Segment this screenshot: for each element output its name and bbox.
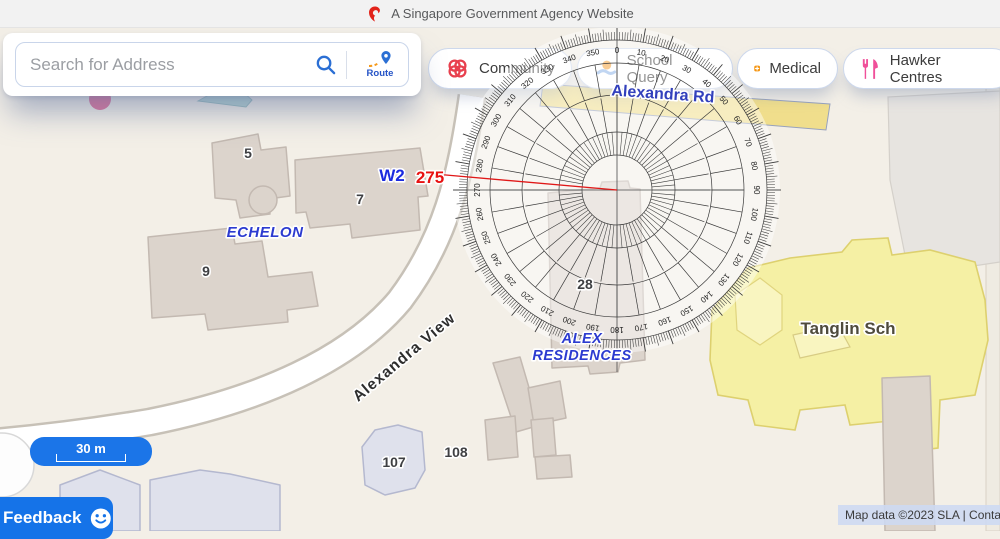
building-number-9: 9	[202, 263, 210, 279]
building-slab-b	[531, 418, 556, 457]
scale-bar: 30 m	[30, 437, 152, 466]
school-icon	[594, 57, 618, 81]
category-button-community[interactable]: Community	[428, 48, 572, 89]
category-label: Hawker Centres	[890, 52, 996, 86]
building-5-bump	[249, 186, 277, 214]
search-box[interactable]: Route	[15, 42, 409, 87]
merlion-icon	[366, 4, 384, 24]
route-pin-icon	[367, 50, 394, 69]
map-attribution[interactable]: Map data ©2023 SLA | Contac	[838, 505, 1000, 525]
banner-text: A Singapore Government Agency Website	[391, 6, 634, 21]
smiley-icon	[89, 506, 113, 531]
route-button[interactable]: Route	[356, 50, 408, 79]
route-label: Route	[367, 69, 394, 79]
category-button-medical[interactable]: Medical	[737, 48, 838, 89]
category-button-school-query[interactable]: School Query	[577, 48, 733, 89]
building-28-tower	[548, 181, 645, 374]
building-number-108: 108	[444, 444, 468, 460]
feedback-label: Feedback	[3, 508, 81, 528]
category-button-hawker-centres[interactable]: Hawker Centres	[843, 48, 1000, 89]
fork-knife-icon	[860, 57, 881, 80]
building-grey-topright	[888, 91, 1000, 268]
building-number-107: 107	[382, 454, 406, 470]
search-card: Route	[3, 33, 421, 96]
building-number-5: 5	[244, 145, 252, 161]
feedback-button[interactable]: Feedback	[0, 497, 113, 539]
magnifier-icon[interactable]	[314, 53, 337, 76]
category-label: Community	[479, 60, 555, 77]
medical-cross-icon	[754, 57, 760, 80]
area-label-tanglin-sch: Tanglin Sch	[800, 319, 895, 338]
building-slab-a	[485, 416, 518, 460]
area-label-echelon: ECHELON	[227, 224, 305, 241]
community-rings-icon	[445, 56, 470, 81]
scale-bracket	[56, 454, 126, 462]
building-slab-c	[535, 455, 572, 479]
search-divider	[346, 51, 347, 79]
building-number-7: 7	[356, 191, 364, 207]
category-label: School Query	[627, 52, 716, 86]
govt-banner: A Singapore Government Agency Website	[0, 0, 1000, 28]
search-input[interactable]	[16, 55, 314, 75]
map-area[interactable]: Alexandra View ECHELON Tanglin Sch 5 7 9…	[0, 27, 1000, 531]
category-label: Medical	[769, 60, 821, 77]
